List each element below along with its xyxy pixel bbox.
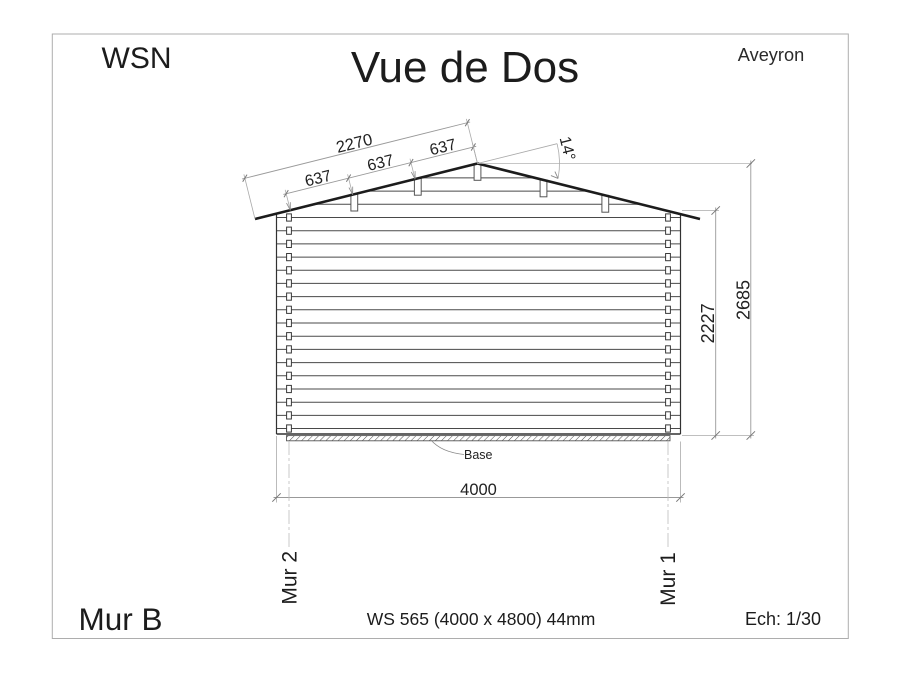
svg-text:Base: Base [464, 448, 493, 462]
svg-text:Mur 2: Mur 2 [279, 551, 302, 605]
svg-text:WSN: WSN [102, 42, 172, 75]
svg-text:Ech: 1/30: Ech: 1/30 [745, 609, 821, 629]
svg-text:2685: 2685 [733, 280, 753, 320]
svg-text:Mur 1: Mur 1 [657, 552, 680, 606]
svg-text:Mur B: Mur B [79, 601, 163, 637]
svg-text:Aveyron: Aveyron [738, 45, 804, 65]
svg-text:2227: 2227 [698, 303, 718, 343]
svg-text:WS 565 (4000 x 4800) 44mm: WS 565 (4000 x 4800) 44mm [367, 609, 596, 629]
svg-text:Vue de Dos: Vue de Dos [351, 43, 579, 92]
svg-text:4000: 4000 [460, 481, 497, 499]
